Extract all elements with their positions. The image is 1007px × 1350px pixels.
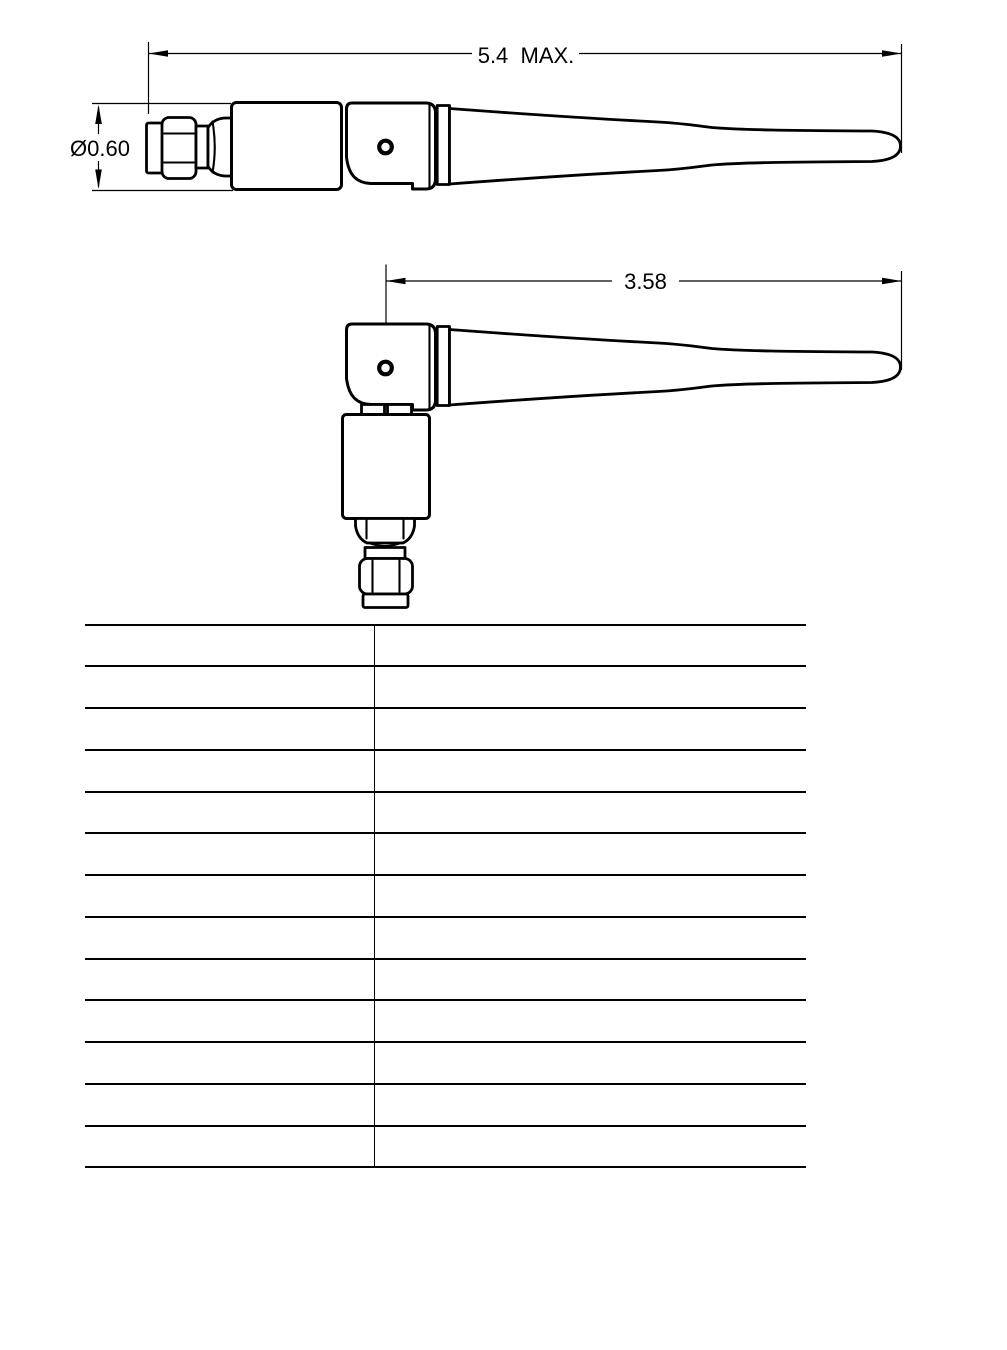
- table-cell-right: [375, 876, 806, 916]
- table-row: [85, 1043, 806, 1085]
- straight-view-drawing: 5.4 MAX. Ø0.60: [70, 42, 901, 191]
- table-cell-left: [85, 876, 375, 916]
- connector-hex-nut: [360, 559, 413, 595]
- table-cell-right: [375, 626, 806, 666]
- hinge-and-blade: [347, 103, 901, 189]
- table-cell-left: [85, 793, 375, 833]
- antenna-body: [343, 415, 430, 519]
- table-cell-right: [375, 709, 806, 749]
- table-cell-left: [85, 1043, 375, 1083]
- arrow-right-icon: [882, 278, 902, 285]
- table-cell-left: [85, 709, 375, 749]
- table-cell-left: [85, 960, 375, 1000]
- connector-washer: [196, 126, 208, 168]
- table-cell-right: [375, 667, 806, 707]
- connector-plug-face: [147, 123, 163, 173]
- folded-view-drawing: 3.58: [343, 265, 902, 608]
- table-cell-left: [85, 1127, 375, 1167]
- connector-taper-collar: [356, 519, 415, 544]
- table-row: [85, 793, 806, 835]
- arrow-up-icon: [95, 105, 102, 125]
- hinge-and-blade: [347, 324, 901, 410]
- table-cell-left: [85, 751, 375, 791]
- table-cell-left: [85, 626, 375, 666]
- table-row: [85, 960, 806, 1002]
- table-cell-left: [85, 918, 375, 958]
- table-row: [85, 1127, 806, 1169]
- table-row: [85, 751, 806, 793]
- antenna-body: [232, 103, 342, 190]
- table-cell-left: [85, 834, 375, 874]
- table-row: [85, 1085, 806, 1127]
- table-cell-right: [375, 1127, 806, 1167]
- table-cell-left: [85, 1085, 375, 1125]
- table-cell-right: [375, 751, 806, 791]
- table-row: [85, 626, 806, 668]
- arrow-left-icon: [149, 50, 169, 57]
- diameter-label: Ø0.60: [70, 136, 130, 161]
- table-cell-right: [375, 834, 806, 874]
- table-row: [85, 834, 806, 876]
- sma-connector: [356, 519, 415, 608]
- arrow-right-icon: [882, 50, 902, 57]
- sma-connector: [147, 118, 232, 179]
- connector-hex-nut: [162, 118, 196, 179]
- spec-table: [85, 624, 806, 1169]
- connector-washer: [365, 548, 405, 559]
- arrow-down-icon: [95, 170, 102, 190]
- table-row: [85, 876, 806, 918]
- table-cell-right: [375, 1001, 806, 1041]
- table-cell-right: [375, 960, 806, 1000]
- connector-plug-face: [363, 594, 408, 608]
- table-cell-right: [375, 1085, 806, 1125]
- arrow-left-icon: [386, 278, 406, 285]
- table-cell-right: [375, 918, 806, 958]
- table-cell-left: [85, 667, 375, 707]
- overall-length-label: 5.4 MAX.: [478, 43, 575, 68]
- folded-length-label: 3.58: [624, 269, 667, 294]
- connector-taper-collar: [208, 118, 232, 176]
- table-row: [85, 667, 806, 709]
- table-cell-right: [375, 793, 806, 833]
- table-cell-left: [85, 1001, 375, 1041]
- table-row: [85, 918, 806, 960]
- table-cell-right: [375, 1043, 806, 1083]
- table-row: [85, 1001, 806, 1043]
- table-row: [85, 709, 806, 751]
- technical-drawing-canvas: 5.4 MAX. Ø0.60: [0, 0, 1007, 620]
